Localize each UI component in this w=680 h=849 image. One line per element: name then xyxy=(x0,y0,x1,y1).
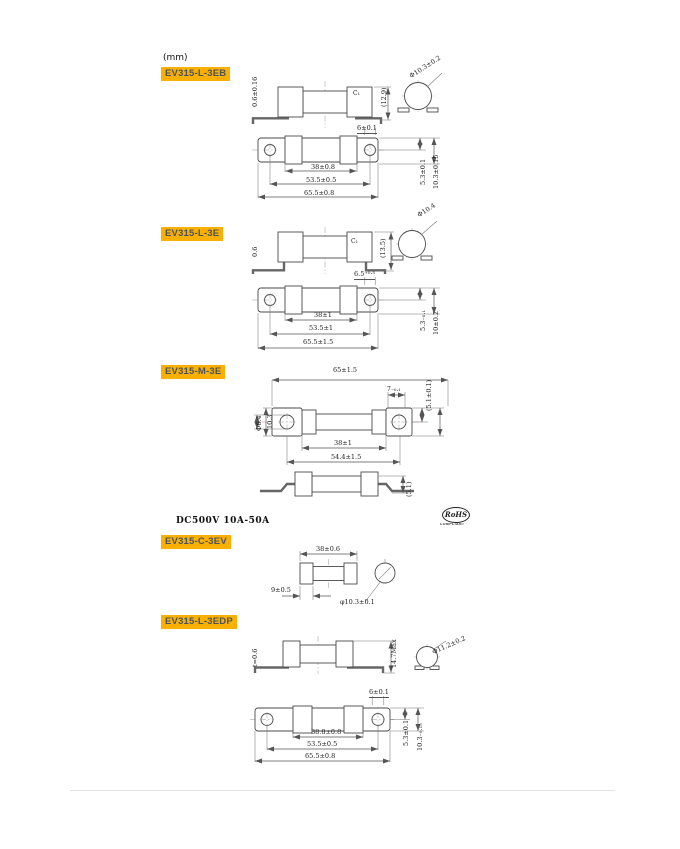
dim-e-terminal-offset: 5.3₋₀.₁ xyxy=(420,310,427,331)
part-number-chip-ev315-m-3e: EV315-M-3E xyxy=(161,365,225,379)
dim-e-terminal-thickness: 0.6 xyxy=(252,247,259,257)
dim-e-body-length: 38±1 xyxy=(314,312,332,319)
dim-e-terminal-width: 10±0.2 xyxy=(433,311,440,335)
dim-eb-terminal-thickness: 0.6±0.16 xyxy=(252,77,259,107)
dim-e-overall-length: 65.5±1.5 xyxy=(303,339,333,346)
dim-e-hole-distance: 53.5±1 xyxy=(309,325,333,332)
dim-edp-terminal-offset: 5.3±0.1 xyxy=(403,720,410,746)
dim-edp-hole-distance: 53.5±0.5 xyxy=(307,741,337,748)
dim-c-body-diameter: φ10.3±0.1 xyxy=(340,599,375,606)
dim-eb-overall-length: 65.5±0.8 xyxy=(304,190,334,197)
edp-side-view-drawing xyxy=(245,633,413,681)
part-number-chip-ev315-l-3edp: EV315-L-3EDP xyxy=(161,615,237,629)
part-number-chip-ev315-l-3eb: EV315-L-3EB xyxy=(161,67,230,81)
dim-edp-body-length: 38.8±0.8 xyxy=(311,729,341,736)
dim-m-tab-width: 7₋₀.₁ xyxy=(387,387,401,393)
dim-e-total-height: (13.5) xyxy=(380,238,387,258)
dim-eb-chamfer: C₁ xyxy=(353,91,360,97)
dim-eb-terminal-offset: 5.3±0.1 xyxy=(420,159,427,185)
dim-eb-hole-distance: 53.5±0.5 xyxy=(306,177,336,184)
dim-edp-slot-width: 6±0.1 xyxy=(369,689,389,698)
unit-label: (mm) xyxy=(163,53,188,63)
dim-eb-body-length: 38±0.8 xyxy=(311,164,335,171)
voltage-current-spec: DC500V 10A-50A xyxy=(176,516,270,526)
m-top-and-side-view-drawing xyxy=(248,372,483,507)
dim-c-body-length: 38±0.6 xyxy=(316,546,340,553)
c-side-and-end-view-drawing xyxy=(268,545,413,617)
page-separator-line xyxy=(70,790,615,791)
rohs-compliant-text: COMPLIANT xyxy=(440,523,465,526)
part-number-chip-ev315-c-3ev: EV315-C-3EV xyxy=(161,535,231,549)
rohs-logo: RoHS xyxy=(442,507,470,523)
dim-edp-overall-length: 65.5±0.8 xyxy=(305,753,335,760)
dim-m-overall-length: 65±1.5 xyxy=(333,367,357,374)
datasheet-page: (mm) EV315-L-3EB 0.6±0.16 xyxy=(0,0,680,849)
dim-m-terminal-width: 10.3 xyxy=(267,415,274,429)
dim-c-cap-length: 9±0.5 xyxy=(271,587,291,594)
dim-m-terminal-span: 54.4±1.5 xyxy=(331,454,361,461)
edp-plan-view-drawing xyxy=(250,690,455,795)
dim-m-leg-height: (5.1) xyxy=(406,482,413,497)
dim-eb-terminal-width: 10.3±0.15 xyxy=(433,155,440,189)
dim-m-body-length: 38±1 xyxy=(334,440,352,447)
dim-m-tab-height: (5.1±0.1) xyxy=(426,380,433,411)
dim-edp-max-height: 14.7Max xyxy=(391,639,398,668)
dim-e-slot-width: 6.5⁺⁰·⁵ xyxy=(354,271,375,280)
rohs-logo-text: RoHS xyxy=(445,510,467,519)
dim-eb-total-height: (12.9) xyxy=(381,87,388,107)
dim-edp-terminal-thickness: t=0.6 xyxy=(252,649,259,667)
eb-side-view-drawing xyxy=(245,80,395,130)
part-number-chip-ev315-l-3e: EV315-L-3E xyxy=(161,227,223,241)
dim-m-hole-diameter: Φ6.4 xyxy=(256,415,263,431)
dim-e-chamfer: C₁ xyxy=(351,239,358,245)
e-end-view-drawing xyxy=(385,213,445,275)
dim-eb-slot-width: 6±0.1 xyxy=(357,125,377,134)
dim-edp-terminal-width: 10.3₋₀.₁₅ xyxy=(417,723,424,751)
